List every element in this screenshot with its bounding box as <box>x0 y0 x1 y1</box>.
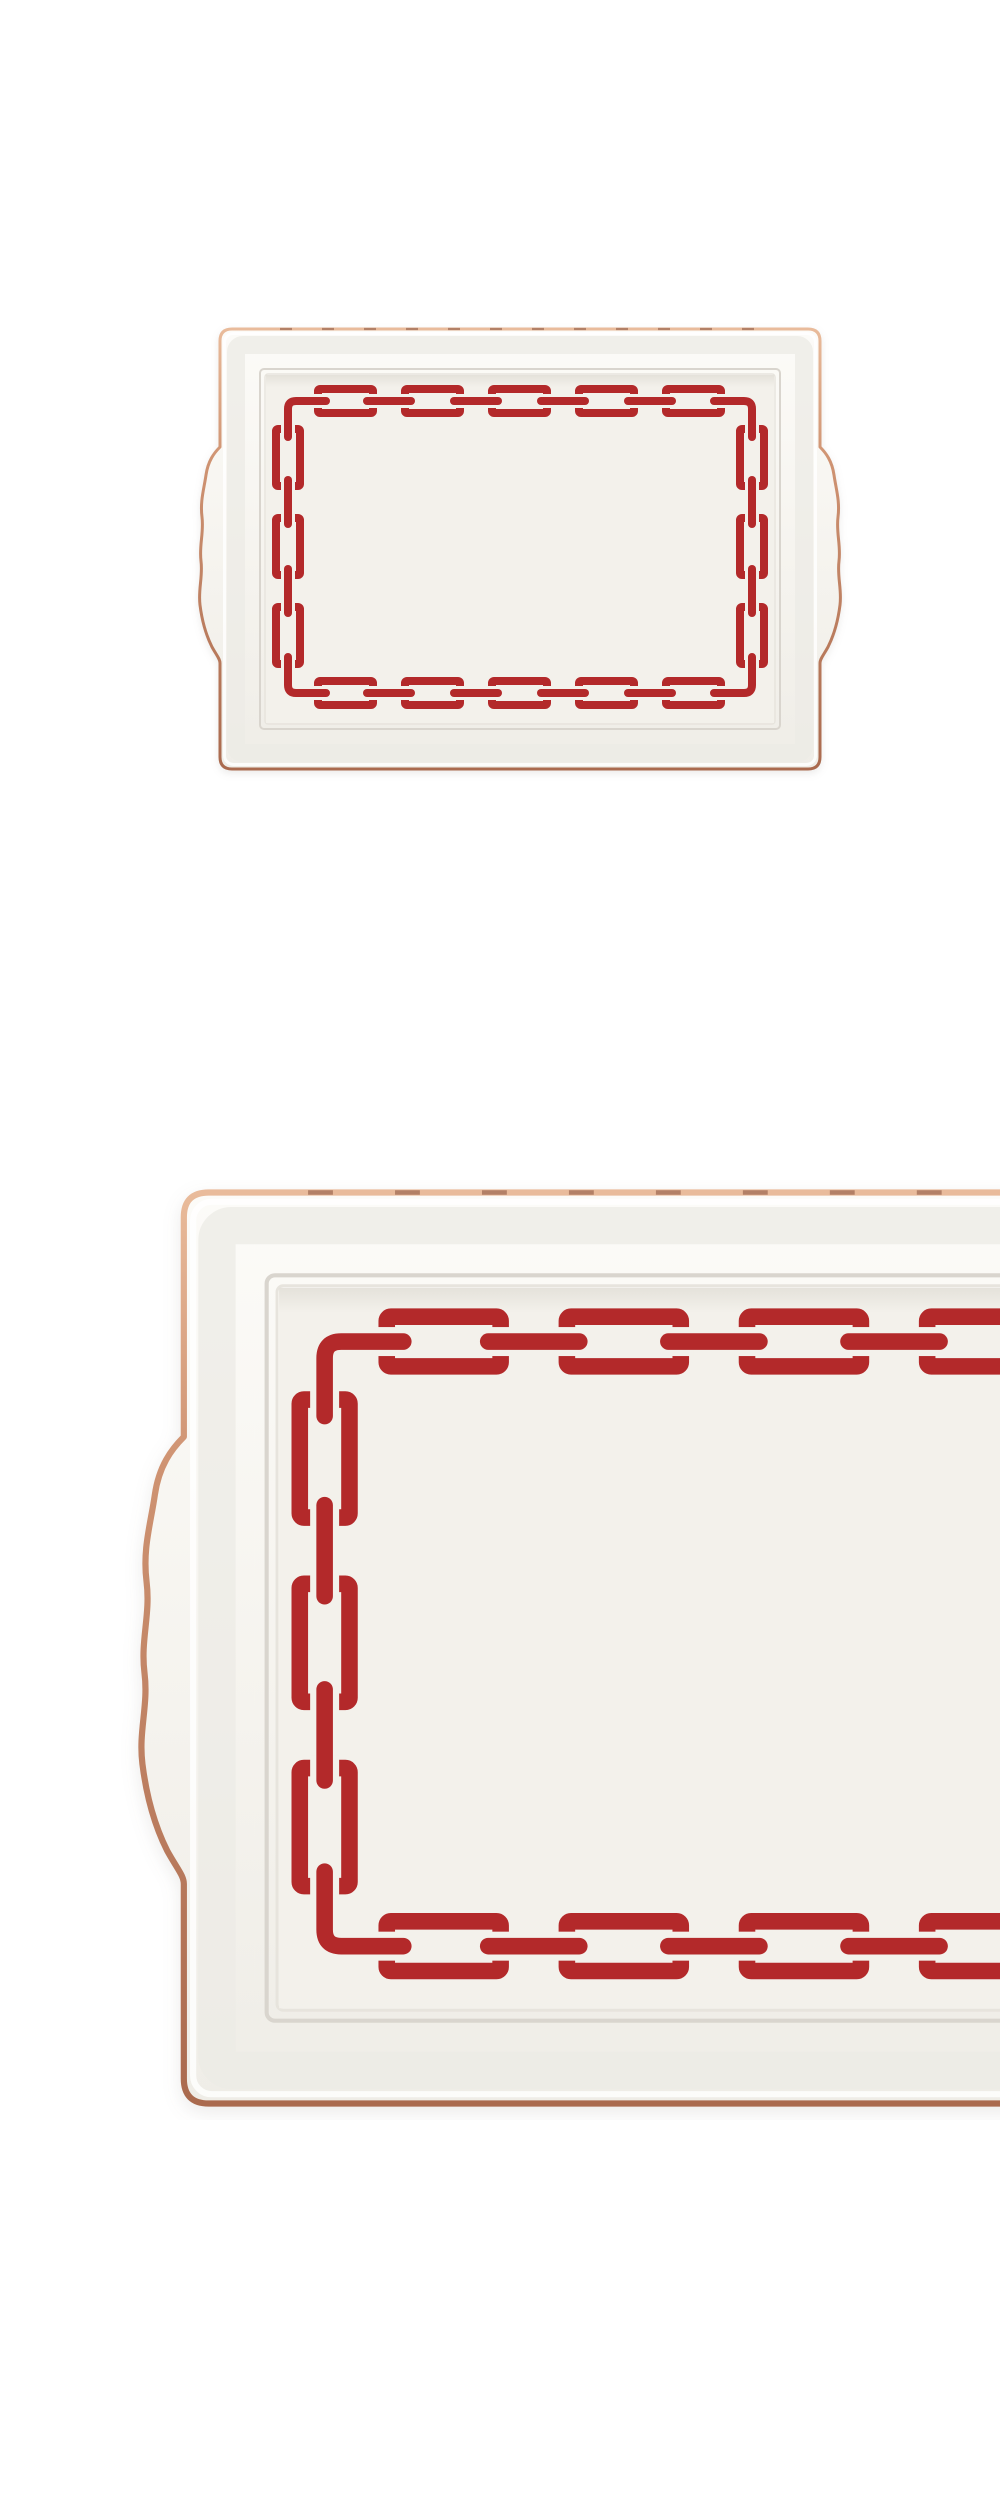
product-image-detail <box>0 1180 1000 2120</box>
tray-photo-detail <box>130 1180 1000 2116</box>
product-image-full <box>194 323 846 775</box>
tray-photo-small <box>194 323 846 775</box>
